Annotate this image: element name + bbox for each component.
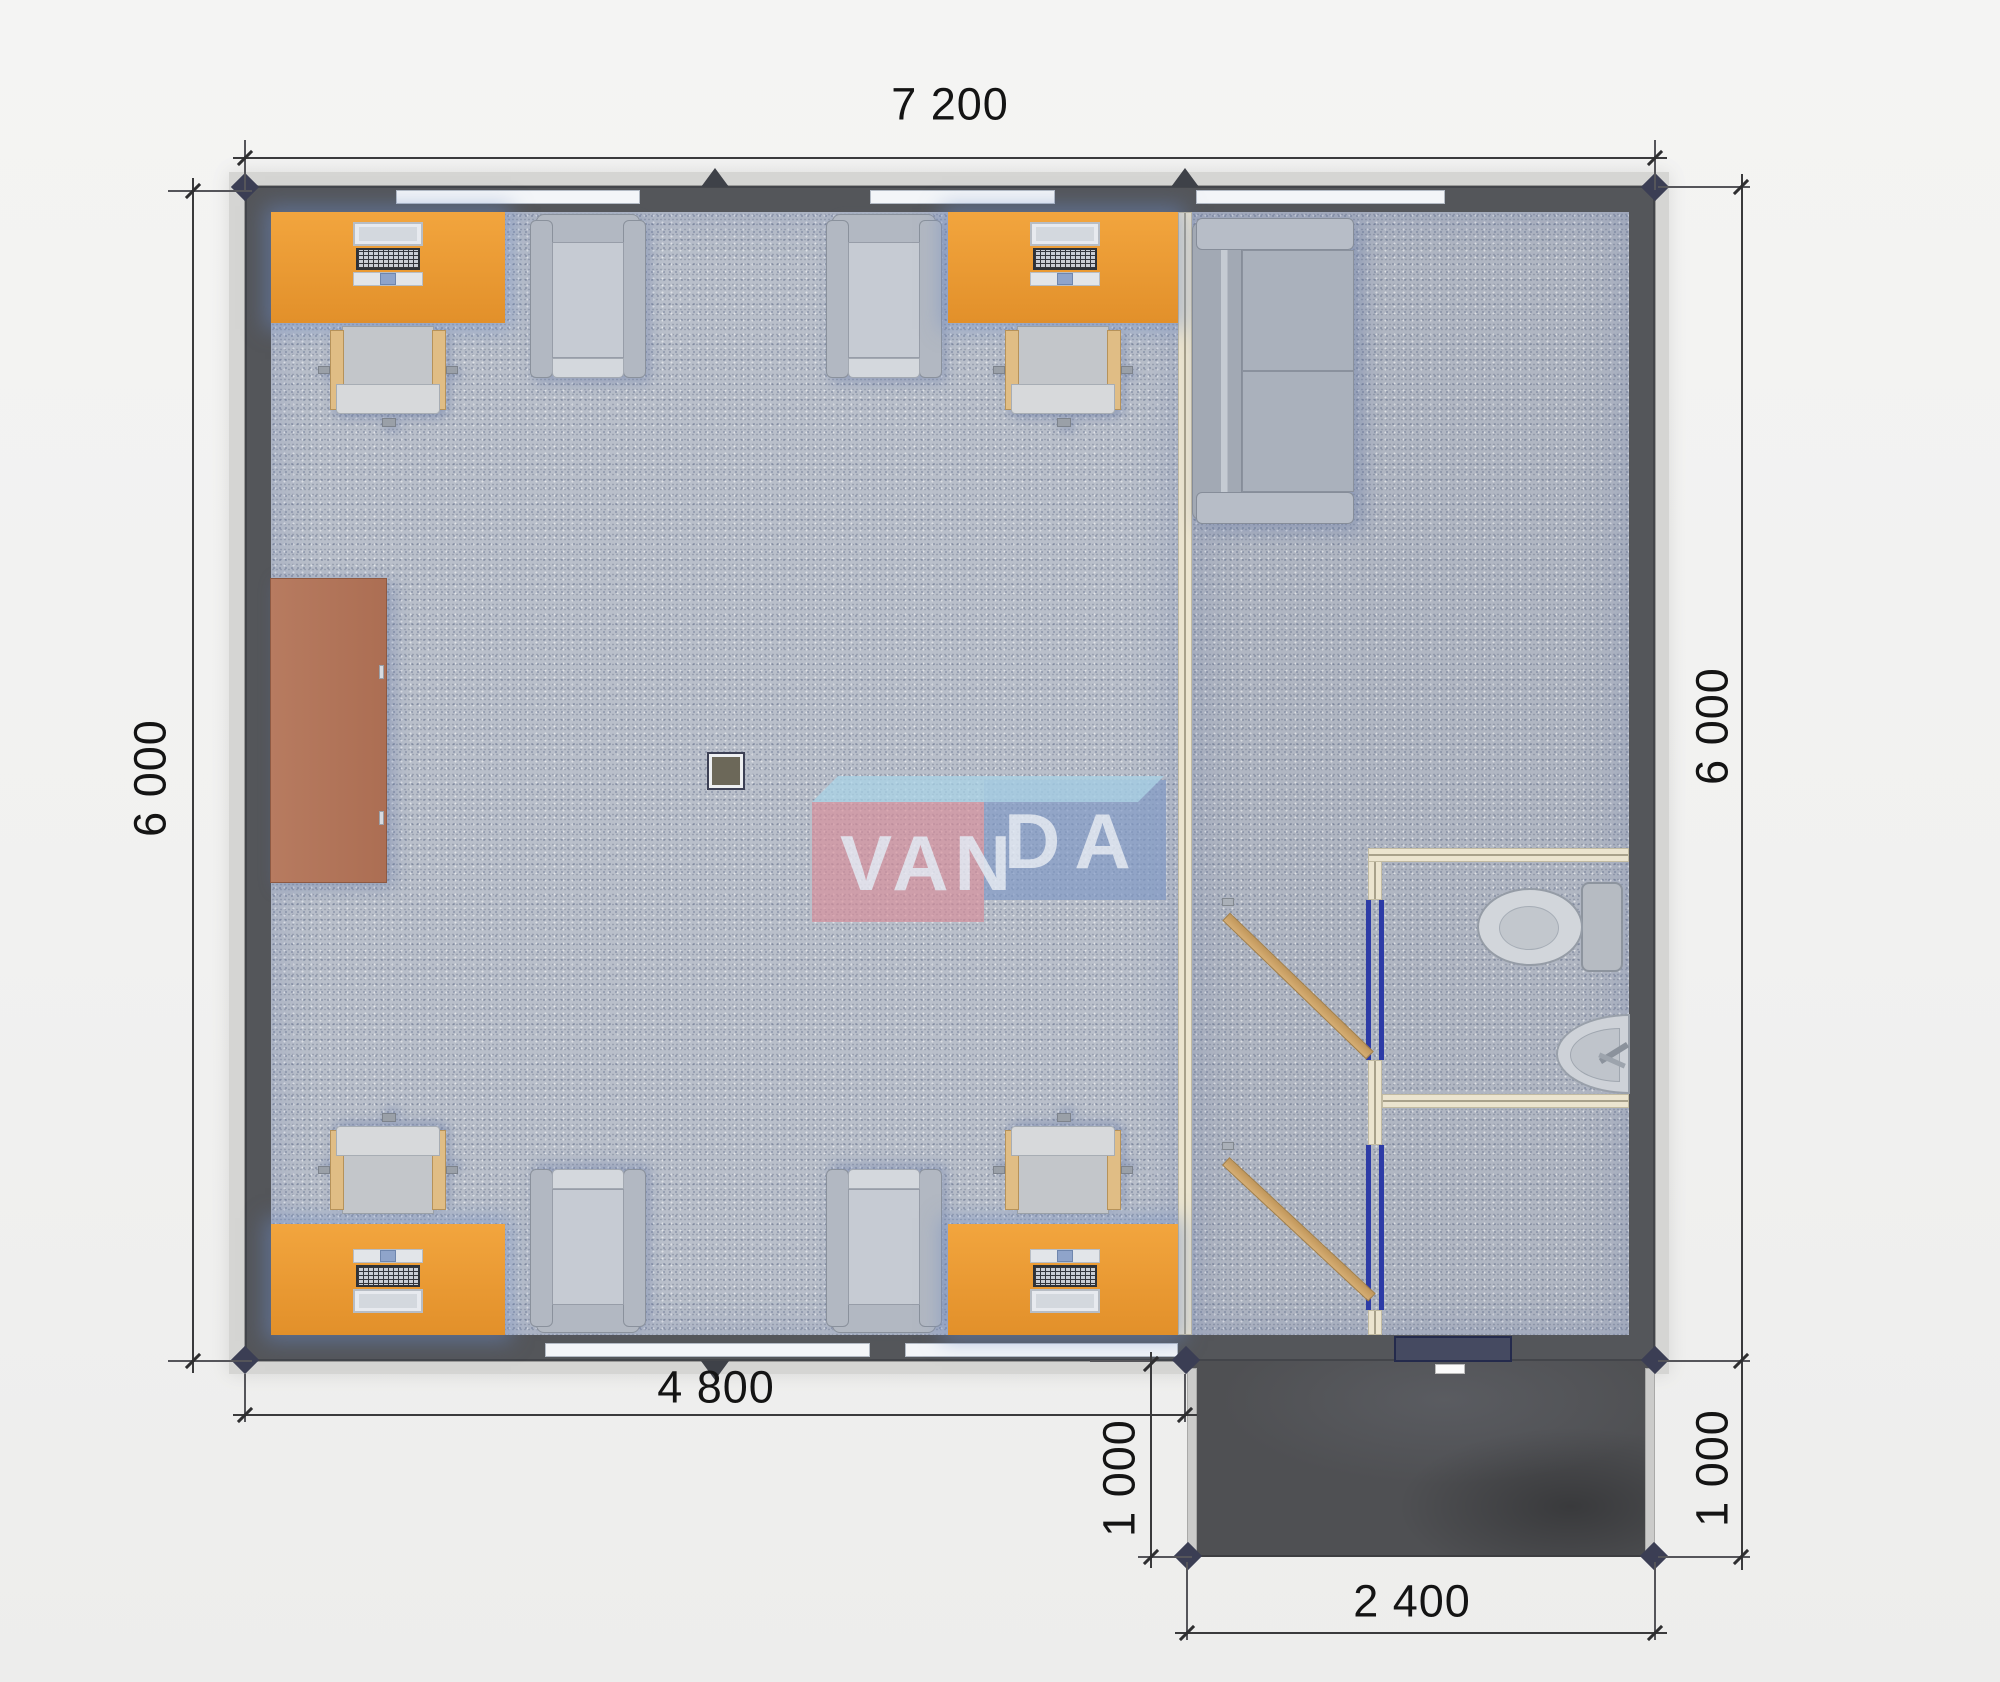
laptop-icon [1030,1249,1100,1313]
bathroom-divider-wall [1382,1094,1629,1108]
witness-line [1658,1556,1750,1558]
desk-chair [1005,1120,1121,1214]
porch-post [1187,1368,1197,1557]
armchair [826,1157,942,1333]
dim-label-porch-left: 1 000 [1097,1419,1142,1537]
door-frame-icon [1366,900,1371,1060]
partition-wall-main [1178,212,1192,1335]
armchair [826,214,942,390]
dim-line-porch-bottom [1175,1632,1667,1634]
window-icon [1196,190,1445,204]
wardrobe-cabinet [270,578,387,883]
window-icon [870,190,1055,204]
witness-line [1658,186,1750,188]
dim-label-bottom-left: 4 800 [657,1365,775,1410]
witness-line [1658,1360,1750,1362]
dim-label-left: 6 000 [128,719,173,837]
floor-plan-scene: VAN DA 7 200 6 000 6 000 4 800 1 000 1 0… [0,0,2000,1682]
dim-line-top [233,157,1667,159]
watermark-text-van: VAN [840,819,1017,907]
dim-label-top: 7 200 [891,82,1009,127]
entrance-door [1394,1336,1512,1362]
desk-chair [1005,326,1121,420]
dim-label-right: 6 000 [1690,667,1735,785]
witness-line [244,140,246,192]
partition-wall-hall-segment [1368,1310,1382,1335]
module-joint-marker-icon [701,168,729,187]
desk-chair [330,1120,446,1214]
laptop-icon [353,1249,423,1313]
armchair [530,1157,646,1333]
desk-chair [330,326,446,420]
dim-line-left [192,178,194,1373]
witness-line [168,190,252,192]
module-joint-marker-icon [1171,168,1199,187]
column-icon [709,754,743,788]
window-icon [396,190,640,204]
witness-line [1090,1360,1152,1362]
door-frame-icon [1379,900,1384,1060]
vanda-watermark-logo: VAN DA [806,766,1166,922]
witness-line [1138,1556,1192,1558]
toilet-icon [1475,878,1627,976]
entrance-door-handle-icon [1435,1364,1465,1374]
partition-wall-hall-segment [1368,1060,1382,1145]
door-handle-icon [1222,898,1234,906]
dim-label-porch-right: 1 000 [1690,1409,1735,1527]
porch-post [1645,1368,1655,1557]
bathroom-top-wall [1368,848,1629,862]
laptop-icon [1030,222,1100,286]
sofa [1192,218,1358,524]
door-handle-icon [1222,1142,1234,1150]
witness-line [1654,140,1656,190]
window-icon [905,1343,1178,1357]
window-icon [545,1343,870,1357]
witness-line [168,1360,252,1362]
door-frame-icon [1379,1145,1384,1310]
armchair [530,214,646,390]
dim-line-porch-left [1150,1352,1152,1568]
watermark-text-da: DA [1004,797,1145,885]
laptop-icon [353,222,423,286]
dim-label-porch-bottom: 2 400 [1353,1579,1471,1624]
dim-line-bottom-left [233,1414,1197,1416]
porch [1187,1361,1655,1557]
